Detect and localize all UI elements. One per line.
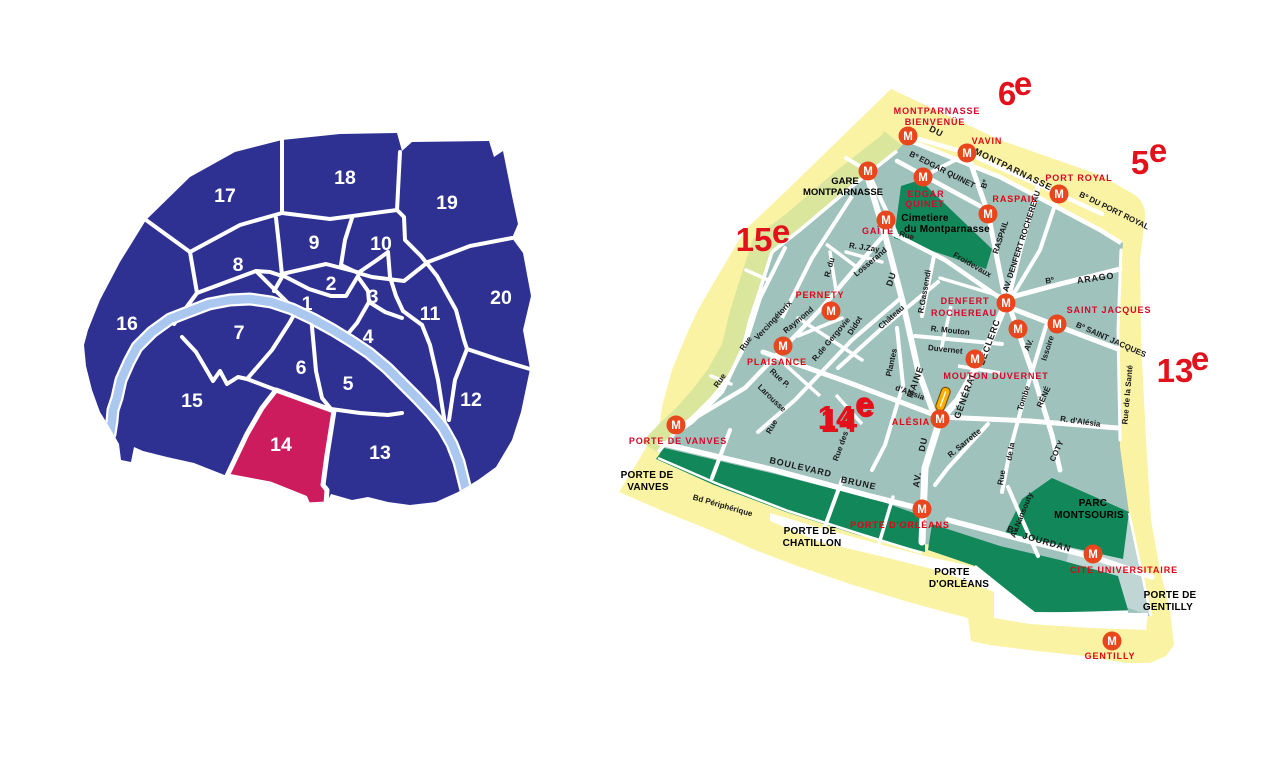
- svg-text:M: M: [918, 172, 928, 184]
- svg-text:MONTSOURIS: MONTSOURIS: [1054, 510, 1124, 521]
- svg-text:9: 9: [309, 232, 320, 254]
- svg-text:7: 7: [234, 322, 245, 344]
- svg-text:MOUTON DUVERNET: MOUTON DUVERNET: [943, 371, 1048, 381]
- svg-text:Bº: Bº: [1045, 275, 1055, 285]
- svg-text:M: M: [1001, 298, 1011, 310]
- svg-text:e: e: [855, 385, 873, 422]
- svg-text:DENFERT: DENFERT: [941, 296, 990, 306]
- svg-text:ROCHEREAU: ROCHEREAU: [931, 308, 997, 318]
- svg-text:PLAISANCE: PLAISANCE: [747, 357, 807, 367]
- svg-text:PORTE: PORTE: [934, 567, 970, 578]
- svg-text:4: 4: [363, 326, 374, 348]
- svg-text:D'ORLÉANS: D'ORLÉANS: [929, 577, 989, 590]
- svg-text:M: M: [778, 341, 788, 353]
- svg-text:M: M: [970, 354, 980, 366]
- svg-text:12: 12: [460, 389, 482, 411]
- svg-text:17: 17: [214, 185, 236, 207]
- svg-text:M: M: [1107, 636, 1117, 648]
- svg-text:GENTILLY: GENTILLY: [1085, 651, 1136, 661]
- svg-text:PORT ROYAL: PORT ROYAL: [1045, 173, 1112, 183]
- svg-text:M: M: [903, 131, 913, 143]
- svg-text:GARE: GARE: [831, 176, 858, 187]
- svg-text:ALÉSIA: ALÉSIA: [892, 417, 930, 427]
- svg-text:PERNETY: PERNETY: [796, 290, 845, 300]
- svg-text:PORTE DE VANVES: PORTE DE VANVES: [629, 436, 727, 446]
- svg-text:19: 19: [436, 192, 458, 214]
- svg-text:M: M: [881, 215, 891, 227]
- svg-text:SAINT JACQUES: SAINT JACQUES: [1067, 305, 1152, 315]
- svg-text:13: 13: [369, 442, 391, 464]
- svg-text:VAVIN: VAVIN: [972, 136, 1003, 146]
- svg-text:3: 3: [368, 286, 379, 308]
- svg-text:M: M: [962, 148, 972, 160]
- svg-text:PORTE D'ORLÉANS: PORTE D'ORLÉANS: [850, 520, 950, 530]
- svg-text:CHATILLON: CHATILLON: [783, 538, 842, 549]
- svg-text:QUINET: QUINET: [905, 199, 944, 209]
- svg-text:PORTE DE: PORTE DE: [784, 526, 837, 537]
- svg-text:16: 16: [116, 313, 138, 335]
- svg-text:14: 14: [270, 434, 292, 456]
- svg-text:5: 5: [1131, 144, 1149, 181]
- svg-text:M: M: [983, 209, 993, 221]
- svg-text:20: 20: [490, 287, 512, 309]
- svg-text:2: 2: [326, 273, 337, 295]
- svg-text:PORTE DE: PORTE DE: [621, 470, 674, 481]
- svg-text:e: e: [1014, 65, 1032, 102]
- svg-text:M: M: [863, 166, 873, 178]
- svg-text:8: 8: [233, 254, 244, 276]
- svg-text:13: 13: [1157, 352, 1194, 389]
- svg-text:M: M: [935, 414, 945, 426]
- svg-text:VANVES: VANVES: [627, 482, 669, 493]
- svg-text:BIENVENÜE: BIENVENÜE: [905, 117, 966, 127]
- svg-text:e: e: [772, 213, 790, 250]
- svg-text:5: 5: [343, 373, 354, 395]
- svg-text:M: M: [1088, 549, 1098, 561]
- svg-text:du Montparnasse: du Montparnasse: [904, 224, 990, 235]
- svg-text:PORTE DE: PORTE DE: [1144, 590, 1197, 601]
- svg-text:MONTPARNASSE: MONTPARNASSE: [894, 106, 981, 116]
- svg-text:M: M: [1013, 324, 1023, 336]
- svg-text:e: e: [1149, 132, 1167, 169]
- svg-text:18: 18: [334, 167, 356, 189]
- svg-text:RASPAIL: RASPAIL: [992, 194, 1037, 204]
- svg-text:Cimetiere: Cimetiere: [901, 213, 949, 224]
- svg-text:MONTPARNASSE: MONTPARNASSE: [803, 187, 883, 198]
- svg-text:15: 15: [181, 390, 203, 412]
- svg-text:15: 15: [736, 221, 773, 258]
- svg-text:14: 14: [818, 399, 855, 436]
- svg-text:11: 11: [420, 303, 441, 325]
- svg-text:M: M: [1054, 189, 1064, 201]
- svg-text:M: M: [917, 504, 927, 516]
- svg-text:CITE UNIVERSITAIRE: CITE UNIVERSITAIRE: [1070, 565, 1178, 575]
- svg-text:6: 6: [296, 357, 307, 379]
- svg-text:M: M: [1052, 319, 1062, 331]
- svg-text:M: M: [671, 420, 681, 432]
- svg-text:e: e: [1191, 340, 1209, 377]
- svg-text:GENTILLY: GENTILLY: [1143, 602, 1193, 613]
- svg-text:1: 1: [302, 293, 313, 315]
- svg-text:10: 10: [370, 233, 392, 255]
- svg-text:EDGAR: EDGAR: [907, 189, 944, 199]
- svg-text:PARC: PARC: [1079, 498, 1107, 509]
- svg-text:M: M: [826, 306, 836, 318]
